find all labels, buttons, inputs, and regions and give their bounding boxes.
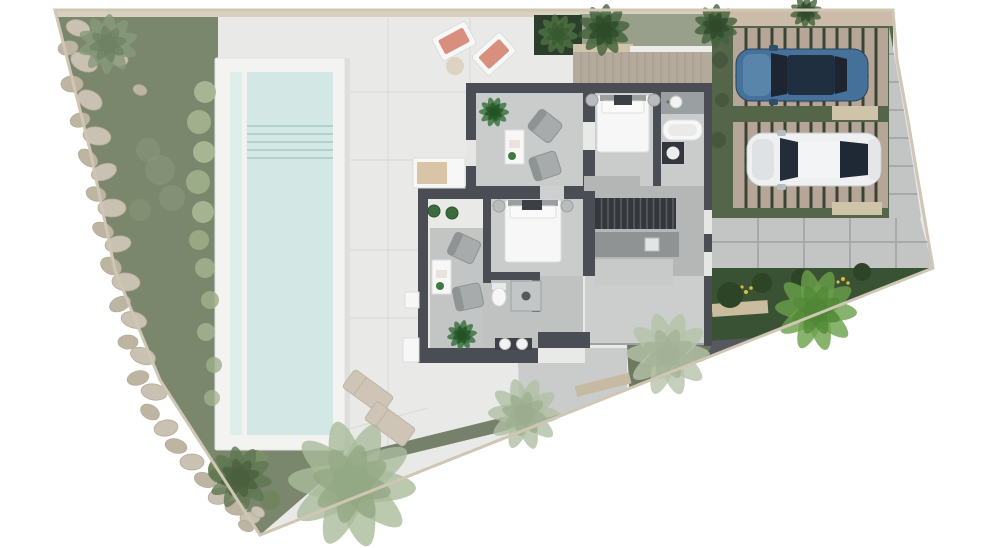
- faucet: [667, 101, 670, 104]
- shrub: [715, 93, 729, 107]
- shower-drain: [522, 292, 531, 301]
- deck-edge: [630, 46, 712, 52]
- car-hood-front: [752, 139, 774, 180]
- window-west: [466, 140, 476, 166]
- shrub: [710, 132, 726, 148]
- wall-south-mid: [538, 332, 590, 348]
- shrub: [187, 110, 211, 134]
- shrub: [197, 323, 215, 341]
- stone-block-2: [832, 202, 882, 215]
- bench-cushion: [417, 162, 447, 184]
- shrub: [206, 357, 222, 373]
- site-plan-svg: [0, 0, 1000, 548]
- car-trunk: [847, 54, 866, 96]
- rear-window: [840, 141, 868, 178]
- stone-block-1: [832, 106, 878, 120]
- wood-deck: [573, 52, 712, 83]
- shrub: [136, 138, 160, 162]
- windshield: [780, 138, 798, 181]
- table-plant: [508, 152, 516, 160]
- wall-north: [466, 83, 712, 93]
- window-east-1: [704, 210, 712, 234]
- shrub: [192, 201, 214, 223]
- pool-lane-divider: [242, 72, 247, 435]
- car-hood: [743, 54, 771, 96]
- wall-lounge2-bed2: [483, 199, 491, 283]
- potted-plant: [428, 205, 440, 217]
- side-mirror: [769, 99, 778, 105]
- toilet: [492, 288, 506, 306]
- shrub: [853, 263, 871, 281]
- door-gap-bedroom2: [540, 186, 564, 199]
- side-mirror: [777, 184, 786, 190]
- pouf: [446, 57, 464, 75]
- shrub: [204, 390, 220, 406]
- car-roof-glass: [787, 55, 835, 95]
- staircase: [595, 198, 676, 229]
- shrub: [193, 141, 215, 163]
- shrub: [129, 199, 151, 221]
- nightstand: [493, 200, 505, 212]
- car-white: [745, 130, 881, 190]
- side-table: [405, 292, 419, 308]
- shrub: [717, 282, 743, 308]
- shrub: [189, 230, 209, 250]
- tray: [436, 270, 447, 278]
- pool-lap-lane: [230, 72, 242, 435]
- kitchen-sink: [645, 238, 659, 251]
- wall-bed2-hall: [583, 199, 595, 276]
- side-table: [403, 338, 419, 362]
- shrub: [712, 52, 728, 68]
- shrub: [159, 185, 185, 211]
- rock: [164, 436, 189, 455]
- window-east-2: [704, 252, 712, 276]
- side-mirror: [769, 45, 778, 51]
- potted-plant: [446, 207, 458, 219]
- rock: [138, 401, 162, 423]
- bathtub-inner: [668, 124, 697, 136]
- kitchen-island: [595, 259, 673, 285]
- bed-2: [493, 200, 573, 262]
- table-plant: [436, 282, 444, 290]
- shrub: [194, 81, 216, 103]
- nightstand: [586, 94, 598, 106]
- wall-south-left: [418, 348, 538, 363]
- rock: [153, 418, 179, 438]
- site-plan-render: [0, 0, 1000, 548]
- rear-window: [835, 56, 847, 94]
- tray: [509, 140, 520, 148]
- bed-1-bench: [584, 176, 640, 191]
- nightstand: [561, 200, 573, 212]
- bed-1: [586, 94, 660, 152]
- rock: [118, 335, 138, 349]
- car-trunk: [868, 139, 880, 180]
- nightstand: [648, 94, 660, 106]
- shrub: [201, 291, 219, 309]
- kitchen-counter: [595, 232, 679, 257]
- rock: [180, 454, 204, 470]
- washbasin: [670, 96, 682, 108]
- shrub: [195, 258, 215, 278]
- car-blue-suv: [735, 45, 869, 105]
- toilet-seat: [667, 147, 680, 160]
- shrub: [752, 273, 772, 293]
- wall-west-lower: [418, 186, 428, 363]
- washbasin: [517, 339, 528, 350]
- washbasin: [500, 339, 511, 350]
- wall-bath2-north: [483, 272, 540, 280]
- car-roof: [798, 141, 840, 178]
- side-mirror: [777, 130, 786, 136]
- windshield: [771, 53, 787, 97]
- shrub: [186, 170, 210, 194]
